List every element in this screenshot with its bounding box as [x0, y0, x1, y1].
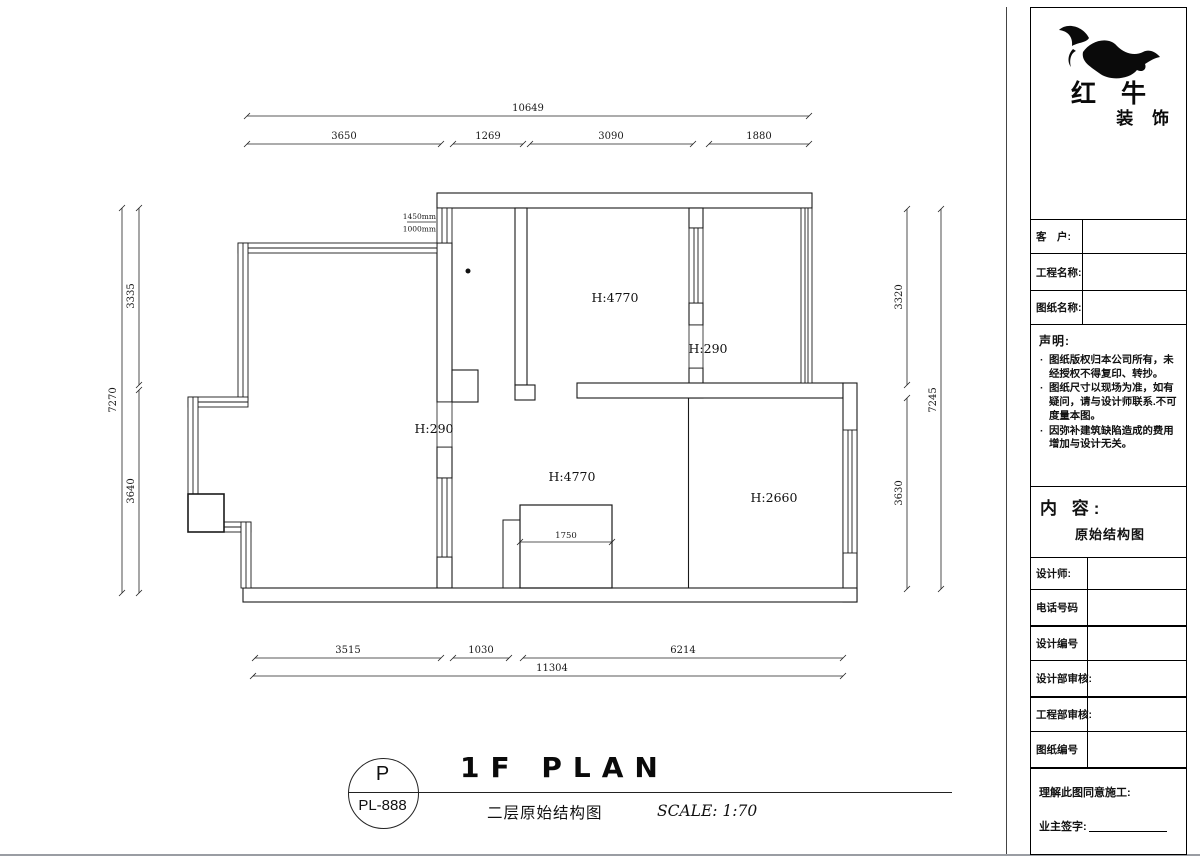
row-phone: 电话号码: [1031, 590, 1186, 627]
signature-row: 业主签字:: [1039, 818, 1167, 834]
label-room-right-height: H:2660: [751, 490, 798, 505]
stairwell: [503, 505, 612, 588]
brand-logo-box: 红 牛 装 饰: [1031, 8, 1186, 220]
phone-label: 电话号码: [1031, 590, 1088, 625]
wall-mid-a: [689, 208, 703, 228]
balcony-glazing: [188, 243, 437, 588]
statement-item: 图纸版权归本公司所有，未经授权不得复印、转抄。: [1039, 354, 1180, 381]
approval-box: 理解此图同意施工: 业主签字:: [1031, 769, 1186, 854]
wall-left-mid: [437, 447, 452, 478]
content-box: 内 容: 原始结构图: [1031, 487, 1186, 558]
row-eng-audit: 工程部审核:: [1031, 698, 1186, 732]
dim-right-2: 3630: [894, 480, 905, 505]
window-note-top: 1450mm: [403, 212, 436, 221]
row-design-no: 设计编号: [1031, 627, 1186, 661]
label-room-main-height: H:4770: [549, 469, 596, 484]
dim-top-overall: 10649: [512, 103, 544, 114]
dim-stair-width: 1750: [555, 531, 577, 541]
content-value: 原始结构图: [1075, 524, 1145, 543]
title-block: 红 牛 装 饰 客 户: 工程名称: 图纸名称: 声明: 图纸版权归本公司所有，…: [1030, 7, 1187, 855]
row-design-audit: 设计部审核:: [1031, 661, 1186, 698]
drawing-sheet: 10649 3650 1269 3090 1880 3515 1030 6214…: [0, 0, 1200, 868]
approval-text: 理解此图同意施工:: [1039, 784, 1131, 800]
dim-left-1: 3335: [126, 283, 137, 308]
duct-block: [188, 494, 224, 532]
statement-item: 图纸尺寸以现场为准，如有疑问，请与设计师联系.不可度量本图。: [1039, 382, 1180, 423]
statement-item: 因弥补建筑缺陷造成的费用增加与设计无关。: [1039, 425, 1180, 452]
reference-dot: [466, 269, 471, 274]
designer-label: 设计师:: [1031, 558, 1088, 589]
brand-subname: 装 饰: [1116, 104, 1176, 129]
dim-left-2: 3640: [126, 478, 137, 503]
wall-pilaster: [452, 370, 478, 402]
sheet-bottom-edge: [0, 854, 1200, 856]
window-lower-left: [437, 478, 452, 557]
row-drawing-no: 图纸编号: [1031, 732, 1186, 769]
plan-title: 1F PLAN: [460, 751, 669, 784]
dim-bottom-3: 6214: [670, 645, 695, 656]
floor-plan-drawing: 10649 3650 1269 3090 1880 3515 1030 6214…: [0, 0, 1010, 730]
design-audit-label: 设计部审核:: [1031, 661, 1088, 696]
row-project: 工程名称:: [1031, 254, 1186, 291]
plan-scale: SCALE: 1:70: [657, 802, 757, 820]
wall-top: [437, 193, 812, 208]
plan-subtitle: 二层原始结构图: [487, 801, 603, 823]
signature-line: [1089, 830, 1167, 832]
drawing-no-label: 图纸编号: [1031, 732, 1088, 767]
dim-right-overall: 7245: [928, 387, 939, 412]
window-note-bottom: 1000mm: [403, 225, 436, 234]
window-lower-right: [843, 430, 857, 553]
dim-top-2: 1269: [475, 131, 500, 142]
title-divider-line: [348, 792, 952, 793]
plan-stamp-letter: P: [348, 763, 417, 786]
row-client: 客 户:: [1031, 220, 1186, 254]
statement-box: 声明: 图纸版权归本公司所有，未经授权不得复印、转抄。 图纸尺寸以现场为准，如有…: [1031, 325, 1186, 487]
dim-top-4: 1880: [746, 131, 771, 142]
content-label: 内 容:: [1040, 494, 1104, 519]
dim-top-3: 3090: [598, 131, 623, 142]
drawing-name-label: 图纸名称:: [1031, 291, 1083, 324]
row-designer: 设计师:: [1031, 558, 1186, 590]
window-upper-right: [801, 208, 812, 383]
label-beam-top-height: H:290: [689, 341, 728, 356]
statement-title: 声明:: [1039, 332, 1180, 349]
dim-right-1: 3320: [894, 284, 905, 309]
dim-bottom-overall: 11304: [536, 663, 568, 674]
label-beam-left-height: H:290: [415, 421, 454, 436]
wall-entry: [515, 208, 527, 385]
wall-bottom: [243, 588, 857, 602]
design-no-label: 设计编号: [1031, 627, 1088, 660]
wall-left-lower: [437, 557, 452, 588]
wall-entry-foot: [515, 385, 535, 400]
window-middle: [689, 228, 703, 303]
dim-top-1: 3650: [331, 131, 356, 142]
dim-bottom-1: 3515: [335, 645, 360, 656]
window-upper-left: [437, 208, 452, 243]
plan-stamp-code: PL-888: [348, 797, 417, 814]
row-drawing-name: 图纸名称:: [1031, 291, 1186, 325]
client-label: 客 户:: [1031, 220, 1083, 253]
dim-bottom-2: 1030: [468, 645, 493, 656]
walls: [243, 193, 857, 602]
eng-audit-label: 工程部审核:: [1031, 698, 1088, 731]
sheet-frame-line: [1006, 7, 1007, 855]
signature-label: 业主签字:: [1039, 821, 1087, 833]
dim-left-overall: 7270: [108, 387, 119, 412]
project-name-label: 工程名称:: [1031, 254, 1083, 290]
wall-left-upper: [437, 243, 452, 402]
label-room-top-height: H:4770: [592, 290, 639, 305]
wall-mid-b: [689, 303, 703, 325]
wall-middle-horizontal: [577, 383, 843, 398]
